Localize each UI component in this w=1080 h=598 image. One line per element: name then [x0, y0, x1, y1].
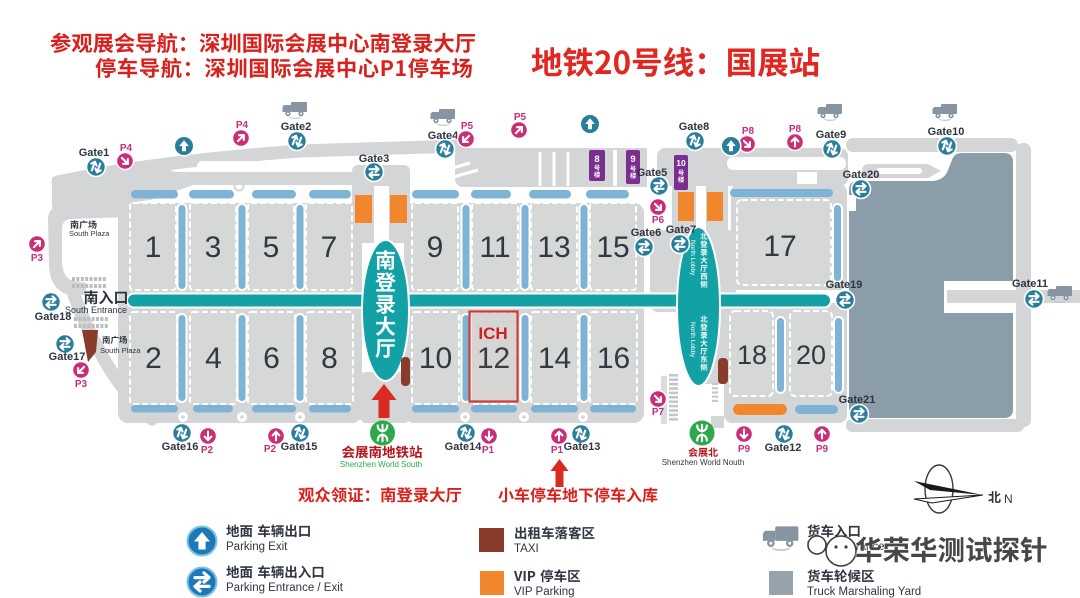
svg-text:P4: P4	[120, 143, 133, 154]
svg-text:10: 10	[419, 342, 452, 375]
svg-text:3: 3	[205, 231, 222, 264]
svg-text:P1: P1	[482, 445, 495, 456]
svg-text:Gate10: Gate10	[928, 126, 965, 138]
svg-text:15: 15	[596, 231, 629, 264]
svg-text:P1: P1	[551, 445, 564, 456]
svg-text:Gate20: Gate20	[843, 169, 880, 181]
svg-text:7: 7	[321, 231, 338, 264]
svg-text:Gate16: Gate16	[162, 441, 199, 453]
svg-text:11: 11	[479, 231, 510, 264]
svg-text:Gate8: Gate8	[679, 121, 710, 133]
svg-text:P5: P5	[461, 121, 474, 132]
svg-text:Gate21: Gate21	[839, 394, 876, 406]
svg-text:P9: P9	[738, 444, 751, 455]
svg-text:Gate2: Gate2	[281, 121, 312, 133]
svg-text:20: 20	[796, 340, 826, 370]
svg-text:13: 13	[537, 231, 570, 264]
svg-text:16: 16	[597, 342, 630, 375]
svg-text:8: 8	[321, 342, 338, 375]
svg-text:Gate12: Gate12	[765, 442, 802, 454]
svg-text:17: 17	[763, 230, 796, 263]
svg-text:South Plaza: South Plaza	[69, 229, 110, 238]
svg-text:Gate1: Gate1	[79, 147, 110, 159]
svg-text:P2: P2	[201, 445, 214, 456]
svg-text:P4: P4	[236, 120, 249, 131]
svg-text:ICH: ICH	[478, 324, 507, 343]
svg-text:P8: P8	[789, 124, 802, 135]
svg-text:TAXI: TAXI	[514, 543, 539, 555]
svg-text:2: 2	[145, 342, 162, 375]
svg-text:9: 9	[630, 154, 635, 165]
svg-text:South Plaza: South Plaza	[100, 346, 141, 355]
svg-text:Gate3: Gate3	[359, 153, 390, 165]
svg-text:P5: P5	[514, 112, 527, 123]
svg-text:6: 6	[263, 342, 280, 375]
svg-text:Gate7: Gate7	[666, 224, 697, 236]
svg-text:Gate4: Gate4	[428, 130, 459, 142]
svg-text:P7: P7	[652, 407, 665, 418]
svg-text:Truck Marshaling Yard: Truck Marshaling Yard	[807, 586, 921, 598]
svg-text:10: 10	[676, 158, 686, 168]
svg-text:8: 8	[594, 154, 599, 165]
svg-text:N: N	[1004, 492, 1013, 506]
svg-text:P2: P2	[264, 444, 277, 455]
svg-text:5: 5	[263, 231, 280, 264]
svg-text:18: 18	[737, 340, 767, 370]
svg-text:Shenzhen World South: Shenzhen World South	[340, 460, 422, 469]
svg-text:Gate19: Gate19	[826, 279, 863, 291]
svg-text:North Lobby: North Lobby	[689, 322, 696, 358]
svg-text:P3: P3	[31, 253, 44, 264]
svg-text:Gate9: Gate9	[816, 129, 847, 141]
svg-text:VIP Parking: VIP Parking	[514, 586, 575, 598]
svg-text:Gate14: Gate14	[445, 441, 483, 453]
svg-text:4: 4	[205, 342, 222, 375]
svg-text:1: 1	[145, 231, 162, 264]
svg-text:P8: P8	[742, 126, 755, 137]
svg-text:Shenzhen World Nouth: Shenzhen World Nouth	[662, 458, 745, 467]
svg-text:P9: P9	[816, 444, 829, 455]
svg-text:P6: P6	[652, 215, 665, 226]
svg-text:Gate6: Gate6	[631, 227, 662, 239]
svg-text:Gate11: Gate11	[1012, 278, 1048, 290]
svg-text:Gate15: Gate15	[281, 441, 318, 453]
svg-text:9: 9	[427, 231, 444, 264]
svg-text:Parking Entrance / Exit: Parking Entrance / Exit	[226, 582, 344, 594]
svg-text:Gate13: Gate13	[564, 441, 601, 453]
svg-text:Gate5: Gate5	[637, 167, 668, 179]
svg-text:14: 14	[538, 342, 571, 375]
svg-text:South Entrance: South Entrance	[65, 305, 127, 315]
svg-text:Parking Exit: Parking Exit	[226, 541, 288, 553]
svg-text:P3: P3	[75, 379, 88, 390]
